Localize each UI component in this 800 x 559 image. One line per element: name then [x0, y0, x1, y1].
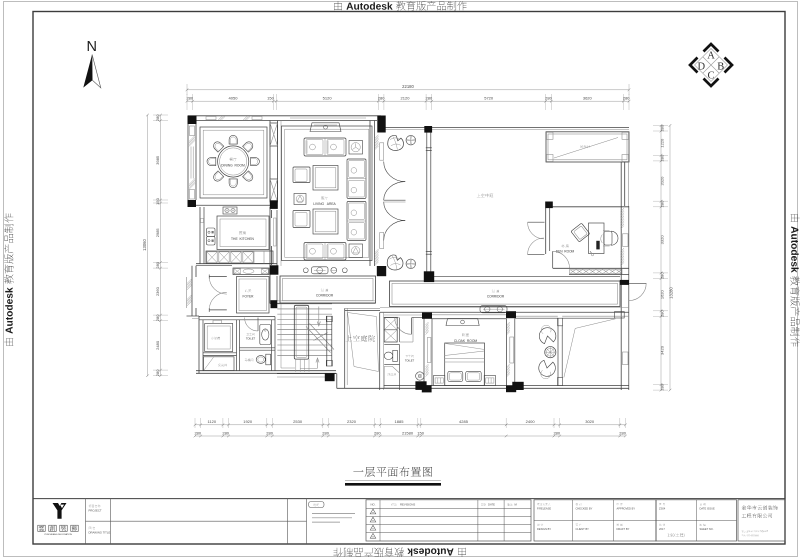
svg-text:B: B: [717, 62, 724, 73]
svg-text:280: 280: [155, 261, 160, 268]
svg-text:APPROVED BY: APPROVED BY: [617, 506, 636, 510]
svg-text:D: D: [698, 62, 706, 73]
svg-text:2360: 2360: [155, 286, 160, 296]
svg-text:280: 280: [374, 430, 381, 435]
svg-text:280: 280: [155, 114, 160, 121]
svg-text:280: 280: [619, 430, 626, 435]
svg-text:P.RELEASE: P.RELEASE: [537, 506, 551, 510]
svg-text:280: 280: [660, 154, 665, 161]
svg-text:280: 280: [660, 309, 665, 316]
svg-text:3020: 3020: [585, 419, 595, 424]
svg-text:13280: 13280: [669, 287, 674, 299]
svg-text:5120: 5120: [323, 96, 333, 101]
svg-text:280: 280: [322, 430, 329, 435]
svg-text:280: 280: [186, 96, 193, 101]
svg-text:NO.: NO.: [371, 503, 376, 507]
svg-text:CHECKED BY: CHECKED BY: [576, 506, 593, 510]
svg-text:3620: 3620: [583, 96, 593, 101]
svg-text:280: 280: [378, 96, 385, 101]
svg-text:THE KITCHEN: THE KITCHEN: [231, 237, 255, 241]
svg-text:150: 150: [417, 430, 424, 435]
svg-text:DRAWING TITLE: DRAWING TITLE: [89, 531, 111, 535]
svg-text:2985: 2985: [155, 228, 160, 238]
svg-text:2480: 2480: [155, 340, 160, 350]
svg-text:1620: 1620: [660, 289, 665, 299]
svg-text:FOYER: FOYER: [243, 294, 255, 298]
svg-text:CORRIDOR: CORRIDOR: [487, 295, 505, 299]
svg-text:SHEET NO.: SHEET NO.: [700, 527, 714, 531]
svg-text:280: 280: [155, 369, 160, 376]
svg-text:2400: 2400: [526, 419, 536, 424]
svg-text:280: 280: [553, 430, 560, 435]
svg-text:DATE ISSUE: DATE ISSUE: [700, 506, 715, 510]
svg-text:4285: 4285: [459, 419, 469, 424]
svg-text:CLOAK ROOM: CLOAK ROOM: [454, 339, 478, 343]
svg-text:150: 150: [155, 197, 160, 204]
svg-text:1120: 1120: [207, 419, 216, 424]
svg-text:DATE: DATE: [488, 503, 495, 507]
svg-text:150: 150: [267, 96, 274, 101]
svg-text:22180: 22180: [402, 84, 414, 89]
svg-text:LIVING AREA: LIVING AREA: [313, 202, 336, 206]
svg-text:PROJECT: PROJECT: [89, 509, 102, 513]
svg-text:280: 280: [660, 272, 665, 279]
svg-text:2530: 2530: [293, 419, 303, 424]
svg-text:TOILET: TOILET: [405, 359, 415, 363]
svg-text:CLIENT BY: CLIENT BY: [576, 527, 590, 531]
svg-text:A: A: [707, 50, 715, 61]
svg-text:5720: 5720: [484, 96, 494, 101]
svg-text:REVISIONS: REVISIONS: [400, 503, 415, 507]
svg-text:2320: 2320: [347, 419, 357, 424]
svg-text:280: 280: [155, 314, 160, 321]
svg-text:1885: 1885: [395, 419, 405, 424]
svg-text:21580: 21580: [402, 430, 414, 435]
svg-text:2020: 2020: [660, 176, 665, 186]
svg-text:280: 280: [660, 383, 665, 390]
svg-text:ZS04: ZS04: [659, 506, 666, 510]
svg-text:2017: 2017: [659, 527, 665, 531]
svg-text:YUNCHUANG DECORATION: YUNCHUANG DECORATION: [44, 533, 72, 536]
svg-text:DINING ROOM: DINING ROOM: [221, 163, 245, 167]
svg-text:2120: 2120: [401, 96, 411, 101]
svg-text:4050: 4050: [229, 96, 239, 101]
svg-text:3320: 3320: [660, 235, 665, 245]
svg-text:280: 280: [426, 96, 433, 101]
svg-text:3985: 3985: [155, 155, 160, 165]
svg-text:280: 280: [545, 96, 552, 101]
svg-text:280: 280: [660, 124, 665, 131]
svg-text:280: 280: [266, 430, 273, 435]
svg-text:13060: 13060: [142, 239, 147, 251]
svg-text:280: 280: [222, 430, 229, 435]
svg-text:DRAFT BY: DRAFT BY: [617, 527, 630, 531]
svg-text:3420: 3420: [660, 345, 665, 355]
svg-text:DEN ROOM: DEN ROOM: [556, 250, 575, 254]
svg-text:DESIGN BY: DESIGN BY: [537, 527, 551, 531]
svg-text:N: N: [87, 39, 97, 55]
svg-text:280: 280: [660, 200, 665, 207]
svg-text:TOILET: TOILET: [246, 337, 256, 341]
svg-text:280: 280: [623, 96, 630, 101]
svg-text:CORRIDOR: CORRIDOR: [316, 294, 334, 298]
svg-text:1220: 1220: [660, 138, 665, 148]
svg-text:C: C: [707, 71, 714, 82]
svg-text:280: 280: [194, 430, 201, 435]
svg-text:1920: 1920: [243, 419, 253, 424]
